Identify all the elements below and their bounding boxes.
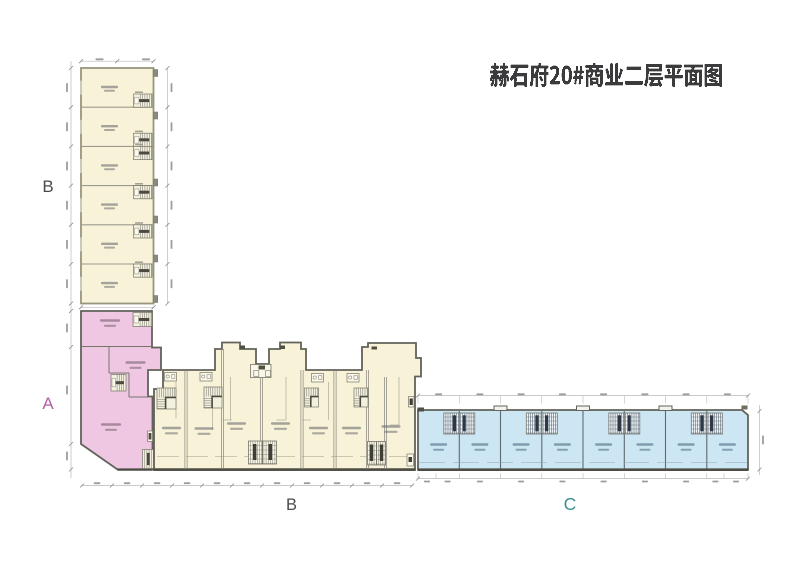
svg-text:B: B bbox=[286, 496, 297, 514]
svg-text:A: A bbox=[42, 394, 54, 413]
svg-text:B: B bbox=[42, 177, 53, 196]
svg-text:C: C bbox=[564, 494, 577, 514]
